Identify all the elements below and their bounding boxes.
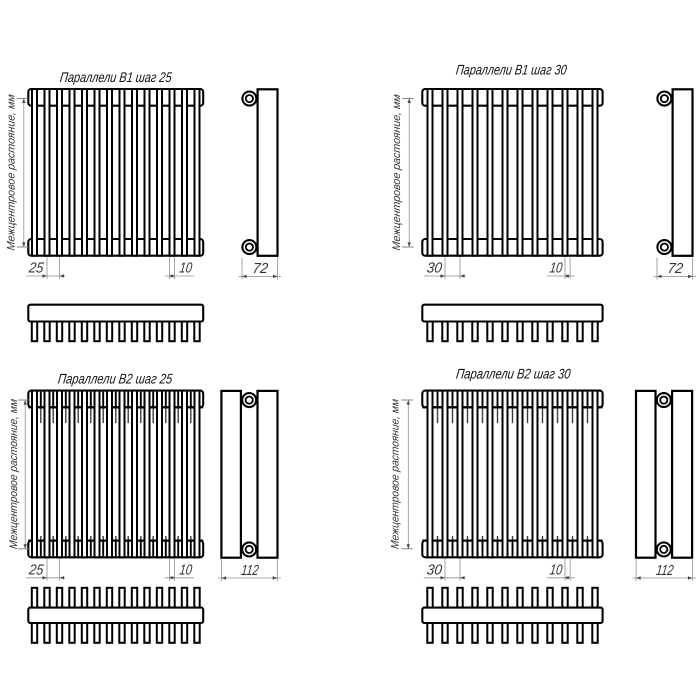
svg-text:Параллели В2 шаг 30: Параллели В2 шаг 30 bbox=[455, 366, 571, 382]
svg-text:30: 30 bbox=[426, 562, 443, 578]
svg-text:112: 112 bbox=[240, 563, 259, 579]
svg-text:Параллели В1 шаг 25: Параллели В1 шаг 25 bbox=[59, 69, 173, 85]
svg-text:10: 10 bbox=[549, 261, 563, 277]
svg-text:Межцентровое растояние, мм: Межцентровое растояние, мм bbox=[8, 398, 20, 550]
svg-text:72: 72 bbox=[252, 261, 269, 277]
svg-text:Межцентровое растояние, мм: Межцентровое растояние, мм bbox=[389, 398, 401, 550]
svg-text:Параллели В1 шаг 30: Параллели В1 шаг 30 bbox=[455, 62, 568, 78]
svg-text:Межцентровое растояние, мм: Межцентровое растояние, мм bbox=[5, 93, 17, 251]
svg-text:25: 25 bbox=[27, 261, 45, 277]
svg-text:30: 30 bbox=[426, 261, 443, 277]
svg-text:Межцентровое растояние, мм: Межцентровое растояние, мм bbox=[391, 93, 403, 251]
svg-text:112: 112 bbox=[655, 563, 674, 579]
svg-text:10: 10 bbox=[179, 562, 193, 578]
svg-text:Параллели В2 шаг 25: Параллели В2 шаг 25 bbox=[57, 371, 173, 387]
svg-text:10: 10 bbox=[179, 261, 193, 277]
svg-text:72: 72 bbox=[667, 261, 684, 277]
svg-text:10: 10 bbox=[549, 562, 563, 578]
svg-text:25: 25 bbox=[27, 562, 45, 578]
